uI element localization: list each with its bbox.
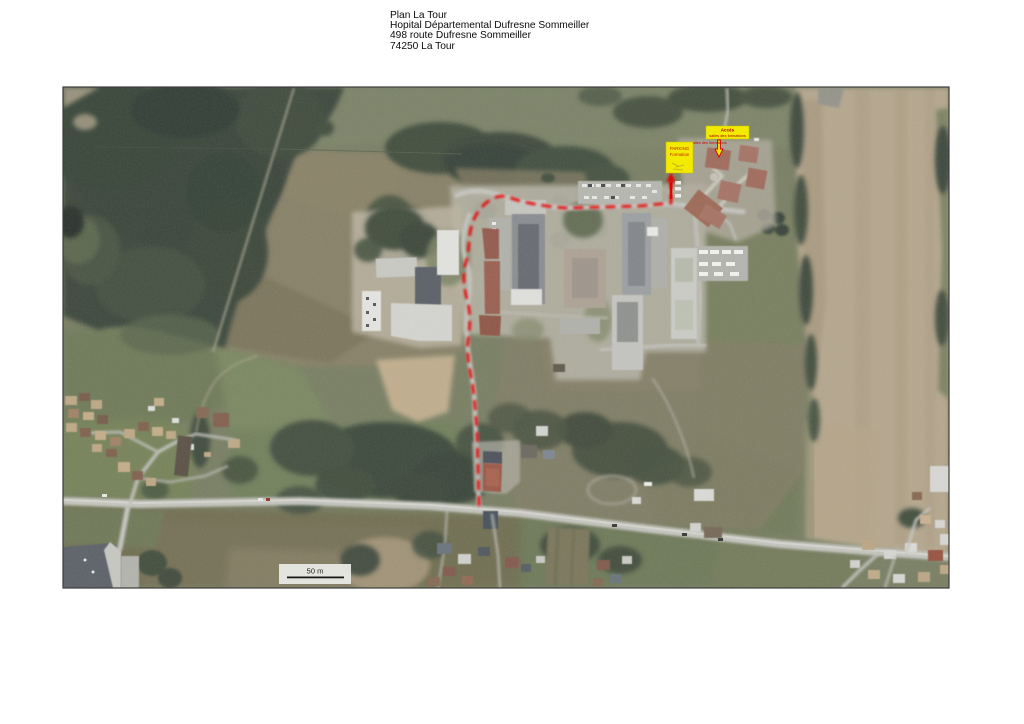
svg-text:Accès: Accès [721,128,735,133]
svg-text:PARKING: PARKING [670,146,690,151]
svg-text:salles des formations: salles des formations [709,133,746,138]
svg-text:50 m: 50 m [307,567,324,576]
svg-text:Formation: Formation [670,152,690,157]
